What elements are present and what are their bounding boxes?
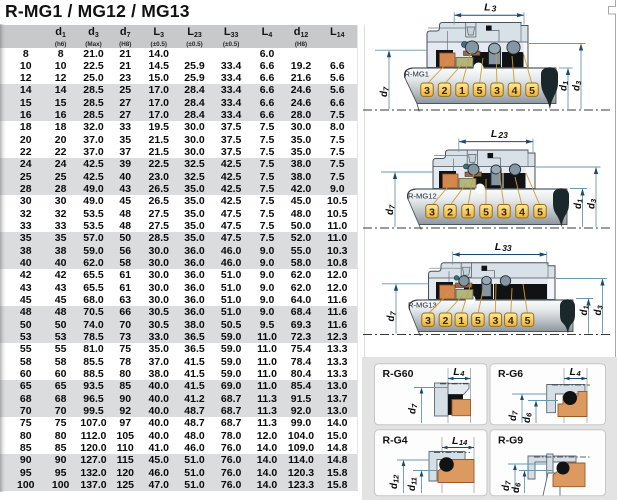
svg-text:33: 33 — [502, 243, 512, 253]
svg-text:3: 3 — [424, 85, 430, 97]
svg-text:d7: d7 — [386, 311, 398, 322]
svg-text:R-MG1: R-MG1 — [405, 70, 429, 79]
svg-text:3: 3 — [494, 85, 500, 97]
svg-text:d7: d7 — [385, 204, 397, 215]
svg-text:R-G9: R-G9 — [498, 434, 523, 446]
svg-text:5: 5 — [537, 206, 543, 218]
svg-text:d6: d6 — [511, 482, 523, 493]
svg-text:5: 5 — [483, 206, 489, 218]
svg-text:3: 3 — [492, 4, 497, 14]
svg-text:d1: d1 — [559, 81, 571, 91]
svg-text:d3: d3 — [572, 80, 584, 91]
svg-text:L: L — [491, 128, 497, 140]
svg-text:d6: d6 — [522, 412, 534, 423]
svg-text:1: 1 — [458, 315, 464, 327]
svg-text:d11: d11 — [407, 477, 419, 491]
svg-text:d7: d7 — [379, 86, 391, 97]
svg-text:4: 4 — [512, 85, 518, 97]
svg-text:1: 1 — [465, 206, 471, 218]
svg-text:d1: d1 — [573, 199, 585, 209]
svg-text:d3: d3 — [587, 198, 599, 209]
svg-text:5: 5 — [475, 315, 481, 327]
svg-text:4: 4 — [519, 206, 525, 218]
svg-text:R-MG13: R-MG13 — [408, 301, 437, 310]
svg-text:4: 4 — [508, 315, 514, 327]
svg-text:d7: d7 — [508, 410, 520, 421]
svg-text:d3: d3 — [593, 305, 605, 316]
svg-text:L: L — [453, 366, 459, 378]
svg-text:5: 5 — [529, 85, 535, 97]
svg-text:5: 5 — [477, 85, 483, 97]
svg-text:3: 3 — [501, 206, 507, 218]
svg-text:R-G4: R-G4 — [383, 434, 408, 446]
svg-text:4: 4 — [576, 369, 582, 378]
svg-text:2: 2 — [447, 206, 453, 218]
svg-text:3: 3 — [429, 206, 435, 218]
svg-text:R-G6: R-G6 — [498, 368, 523, 380]
svg-text:2: 2 — [442, 85, 448, 97]
svg-text:L: L — [495, 241, 501, 253]
svg-text:3: 3 — [425, 315, 431, 327]
svg-text:d1: d1 — [579, 305, 591, 315]
svg-text:5: 5 — [525, 315, 531, 327]
svg-text:R-G60: R-G60 — [383, 368, 414, 380]
svg-text:1: 1 — [459, 85, 465, 97]
svg-text:23: 23 — [497, 130, 508, 140]
svg-text:d12: d12 — [389, 474, 401, 489]
svg-text:L: L — [452, 435, 458, 447]
svg-text:14: 14 — [459, 438, 468, 447]
svg-text:2: 2 — [442, 315, 448, 327]
svg-text:4: 4 — [459, 369, 465, 378]
svg-text:R-MG12: R-MG12 — [408, 192, 437, 201]
svg-text:L: L — [484, 2, 490, 14]
svg-text:3: 3 — [492, 315, 498, 327]
svg-text:d7: d7 — [408, 403, 420, 414]
svg-text:L: L — [570, 366, 576, 378]
